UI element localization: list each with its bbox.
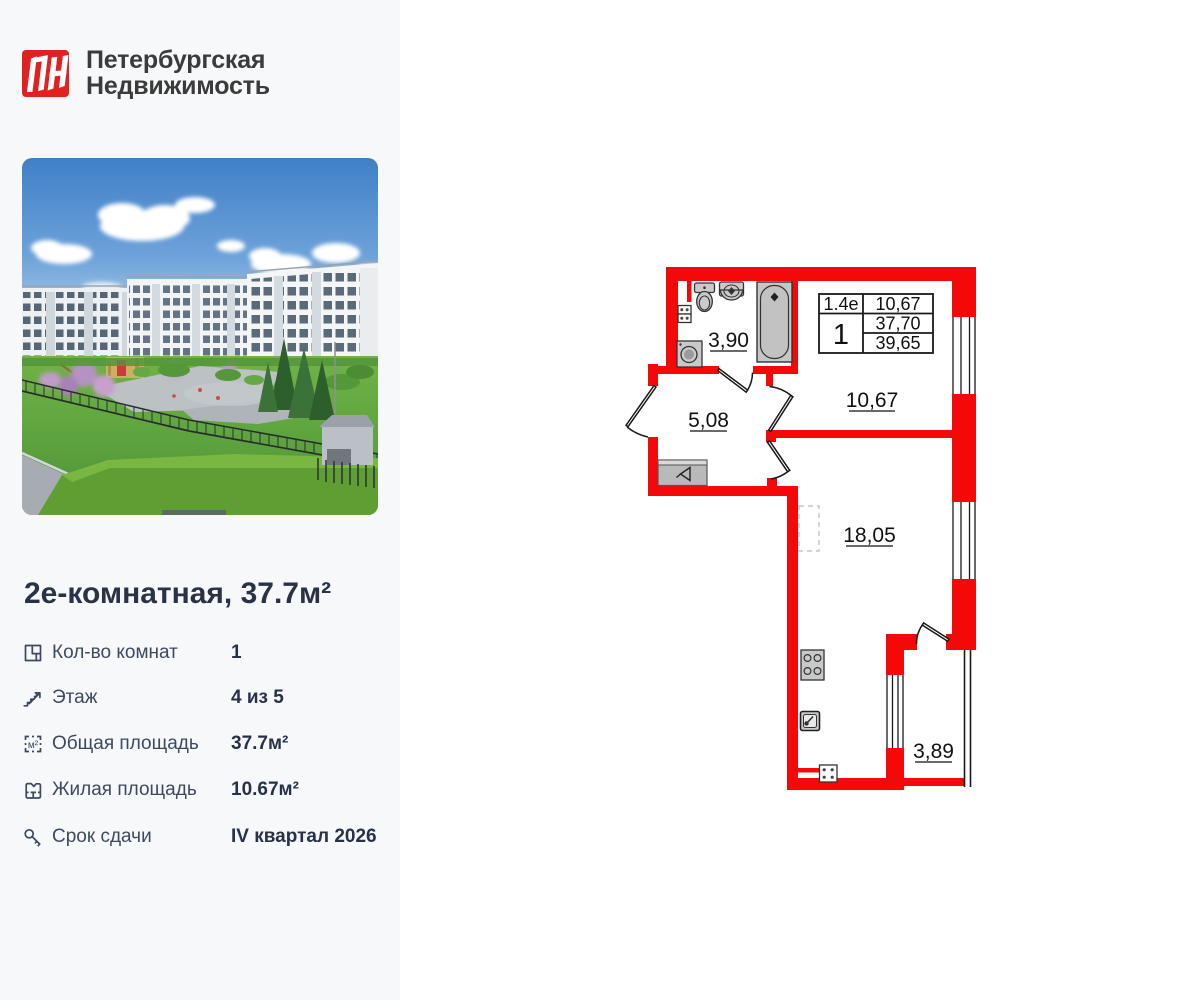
svg-text:3,89: 3,89 [913, 740, 954, 763]
svg-text:37,70: 37,70 [875, 314, 920, 334]
svg-text:3,90: 3,90 [708, 329, 749, 352]
svg-text:10,67: 10,67 [875, 294, 920, 314]
svg-text:10,67: 10,67 [846, 389, 899, 412]
svg-text:1: 1 [833, 319, 849, 351]
svg-text:39,65: 39,65 [875, 333, 920, 353]
svg-text:5,08: 5,08 [688, 409, 729, 432]
svg-text:1.4е: 1.4е [823, 294, 858, 314]
svg-text:18,05: 18,05 [843, 524, 896, 547]
